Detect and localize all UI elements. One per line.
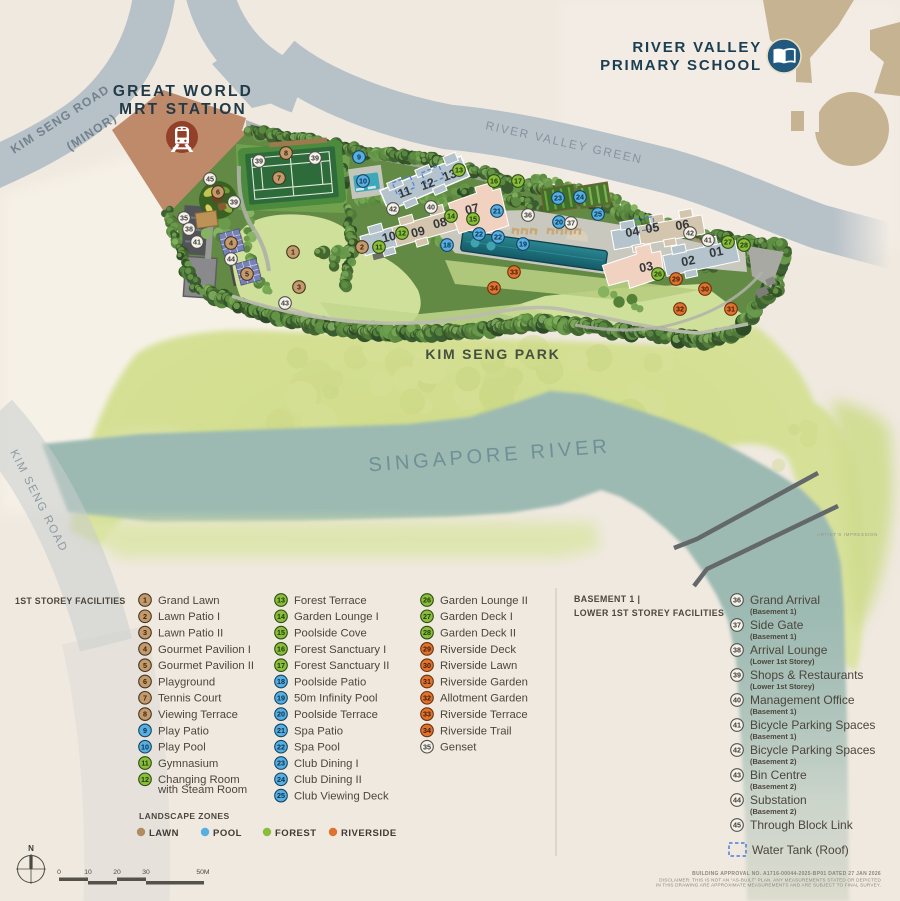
svg-text:Forest Terrace: Forest Terrace (294, 595, 367, 607)
svg-text:36: 36 (733, 596, 741, 605)
svg-text:8: 8 (284, 149, 288, 158)
svg-text:(Lower 1st Storey): (Lower 1st Storey) (750, 682, 815, 691)
svg-text:(Basement 1): (Basement 1) (750, 632, 797, 641)
svg-text:Spa Pool: Spa Pool (294, 742, 340, 754)
svg-text:4: 4 (229, 239, 233, 248)
svg-text:LAWN: LAWN (149, 828, 179, 839)
svg-text:33: 33 (510, 268, 518, 277)
svg-text:(Basement 2): (Basement 2) (750, 782, 797, 791)
svg-text:Playground: Playground (158, 676, 215, 688)
svg-text:14: 14 (277, 612, 285, 621)
svg-text:Arrival Lounge: Arrival Lounge (750, 643, 828, 657)
svg-text:Garden Deck II: Garden Deck II (440, 628, 516, 640)
svg-text:BUILDING APPROVAL NO. A1716-00: BUILDING APPROVAL NO. A1716-00044-2025-B… (692, 871, 881, 877)
svg-text:Riverside Trail: Riverside Trail (440, 725, 512, 737)
svg-text:35: 35 (180, 214, 188, 223)
svg-text:37: 37 (567, 219, 575, 228)
svg-text:19: 19 (277, 693, 285, 702)
svg-text:27: 27 (724, 238, 732, 247)
svg-text:31: 31 (423, 677, 431, 686)
svg-text:5: 5 (245, 270, 249, 279)
svg-text:Tennis Court: Tennis Court (158, 693, 222, 705)
svg-text:24: 24 (277, 775, 285, 784)
svg-text:15: 15 (277, 628, 285, 637)
svg-text:7: 7 (143, 693, 147, 702)
svg-text:02: 02 (680, 253, 696, 269)
svg-text:Forest Sanctuary I: Forest Sanctuary I (294, 644, 386, 656)
svg-text:45: 45 (206, 175, 214, 184)
svg-text:Play Patio: Play Patio (158, 725, 209, 737)
svg-text:9: 9 (357, 153, 361, 162)
svg-text:18: 18 (277, 677, 285, 686)
svg-text:25: 25 (277, 791, 285, 800)
svg-text:2: 2 (143, 612, 147, 621)
svg-text:29: 29 (672, 275, 680, 284)
svg-text:30: 30 (142, 869, 150, 876)
svg-text:23: 23 (554, 194, 562, 203)
svg-text:FOREST: FOREST (275, 828, 317, 839)
svg-text:Poolside Terrace: Poolside Terrace (294, 709, 378, 721)
svg-text:13: 13 (455, 166, 463, 175)
svg-text:7: 7 (277, 174, 281, 183)
svg-text:Lawn Patio II: Lawn Patio II (158, 628, 223, 640)
svg-text:(Basement 1): (Basement 1) (750, 732, 797, 741)
svg-text:43: 43 (733, 771, 741, 780)
svg-text:30: 30 (701, 285, 709, 294)
svg-text:Genset: Genset (440, 742, 477, 754)
svg-text:MRT STATION: MRT STATION (119, 101, 247, 118)
svg-text:32: 32 (423, 693, 431, 702)
svg-text:Viewing Terrace: Viewing Terrace (158, 709, 238, 721)
svg-text:21: 21 (277, 726, 285, 735)
svg-text:Garden Deck I: Garden Deck I (440, 611, 513, 623)
svg-text:Bicycle Parking Spaces: Bicycle Parking Spaces (750, 718, 875, 732)
svg-text:11: 11 (375, 243, 383, 252)
svg-text:16: 16 (277, 645, 285, 654)
svg-text:12: 12 (398, 229, 406, 238)
svg-text:20: 20 (113, 869, 121, 876)
svg-text:Play Pool: Play Pool (158, 742, 206, 754)
svg-text:9: 9 (143, 726, 147, 735)
svg-text:3: 3 (143, 628, 147, 637)
svg-text:1: 1 (143, 596, 147, 605)
svg-text:0: 0 (57, 869, 61, 876)
svg-text:18: 18 (443, 241, 451, 250)
svg-text:42: 42 (686, 229, 694, 238)
svg-text:50M: 50M (196, 869, 210, 876)
svg-text:22: 22 (277, 742, 285, 751)
svg-text:33: 33 (423, 710, 431, 719)
svg-text:Bin Centre: Bin Centre (750, 768, 807, 782)
svg-text:KIM SENG PARK: KIM SENG PARK (425, 346, 560, 362)
svg-text:28: 28 (423, 628, 431, 637)
svg-text:Water Tank (Roof): Water Tank (Roof) (752, 843, 849, 857)
svg-text:(Basement 2): (Basement 2) (750, 807, 797, 816)
svg-text:LANDSCAPE ZONES: LANDSCAPE ZONES (139, 811, 230, 821)
svg-text:30: 30 (423, 661, 431, 670)
svg-text:Lawn Patio I: Lawn Patio I (158, 611, 220, 623)
svg-text:(Basement 2): (Basement 2) (750, 757, 797, 766)
svg-text:1ST STOREY FACILITIES: 1ST STOREY FACILITIES (15, 596, 126, 606)
svg-text:Riverside Garden: Riverside Garden (440, 676, 528, 688)
svg-text:LOWER 1ST STOREY FACILITIES: LOWER 1ST STOREY FACILITIES (574, 608, 724, 618)
svg-text:Garden Lounge I: Garden Lounge I (294, 611, 379, 623)
svg-text:10: 10 (359, 177, 367, 186)
svg-text:17: 17 (514, 177, 522, 186)
svg-text:Gymnasium: Gymnasium (158, 758, 218, 770)
svg-text:32: 32 (676, 305, 684, 314)
svg-text:10: 10 (141, 742, 149, 751)
svg-text:ARTIST’S IMPRESSION: ARTIST’S IMPRESSION (817, 532, 878, 537)
svg-text:Side Gate: Side Gate (750, 618, 804, 632)
svg-text:PRIMARY SCHOOL: PRIMARY SCHOOL (600, 57, 762, 74)
svg-text:Substation: Substation (750, 793, 807, 807)
svg-text:POOL: POOL (213, 828, 242, 839)
svg-text:15: 15 (469, 215, 477, 224)
svg-text:41: 41 (733, 721, 741, 730)
svg-text:Club Dining II: Club Dining II (294, 774, 362, 786)
svg-text:28: 28 (740, 241, 748, 250)
svg-text:Grand Lawn: Grand Lawn (158, 595, 220, 607)
svg-text:5: 5 (143, 661, 147, 670)
svg-text:Gourmet Pavilion II: Gourmet Pavilion II (158, 660, 254, 672)
svg-text:(Basement 1): (Basement 1) (750, 707, 797, 716)
svg-text:IN THIS DRAWING ARE APPROXIMAT: IN THIS DRAWING ARE APPROXIMATE MEASUREM… (656, 883, 881, 888)
svg-text:10: 10 (84, 869, 92, 876)
svg-text:20: 20 (277, 710, 285, 719)
svg-text:(Basement 1): (Basement 1) (750, 607, 797, 616)
svg-text:39: 39 (255, 157, 263, 166)
svg-text:6: 6 (216, 188, 220, 197)
svg-text:2: 2 (360, 243, 364, 252)
svg-text:39: 39 (311, 154, 319, 163)
svg-text:N: N (28, 844, 34, 853)
svg-text:17: 17 (277, 661, 285, 670)
svg-text:13: 13 (277, 596, 285, 605)
svg-text:Riverside Lawn: Riverside Lawn (440, 660, 517, 672)
svg-text:8: 8 (143, 710, 147, 719)
svg-text:(Lower 1st Storey): (Lower 1st Storey) (750, 657, 815, 666)
svg-text:Allotment Garden: Allotment Garden (440, 693, 528, 705)
svg-text:50m Infinity Pool: 50m Infinity Pool (294, 693, 378, 705)
svg-text:BASEMENT 1 |: BASEMENT 1 | (574, 594, 640, 604)
svg-text:29: 29 (423, 645, 431, 654)
svg-text:RIVERSIDE: RIVERSIDE (341, 828, 397, 839)
svg-text:16: 16 (490, 177, 498, 186)
svg-text:39: 39 (230, 198, 238, 207)
svg-text:4: 4 (143, 645, 147, 654)
svg-text:Grand Arrival: Grand Arrival (750, 593, 820, 607)
svg-text:26: 26 (423, 596, 431, 605)
svg-text:37: 37 (733, 621, 741, 630)
svg-text:44: 44 (733, 796, 741, 805)
svg-text:34: 34 (490, 284, 498, 293)
svg-text:Spa Patio: Spa Patio (294, 725, 343, 737)
svg-text:Club Viewing Deck: Club Viewing Deck (294, 791, 389, 803)
svg-text:Riverside Deck: Riverside Deck (440, 644, 516, 656)
svg-text:41: 41 (704, 236, 712, 245)
svg-text:40: 40 (733, 696, 741, 705)
svg-text:1: 1 (291, 248, 295, 257)
svg-text:40: 40 (427, 203, 435, 212)
svg-text:38: 38 (733, 646, 741, 655)
svg-text:19: 19 (519, 240, 527, 249)
svg-text:Poolside Cove: Poolside Cove (294, 628, 367, 640)
svg-text:22: 22 (475, 230, 483, 239)
svg-text:42: 42 (389, 205, 397, 214)
svg-text:35: 35 (423, 742, 431, 751)
svg-text:Riverside Terrace: Riverside Terrace (440, 709, 528, 721)
svg-text:Through Block Link: Through Block Link (750, 818, 854, 832)
svg-text:3: 3 (297, 283, 301, 292)
svg-text:Garden Lounge II: Garden Lounge II (440, 595, 528, 607)
svg-text:39: 39 (733, 671, 741, 680)
svg-text:45: 45 (733, 821, 741, 830)
svg-text:42: 42 (733, 746, 741, 755)
svg-text:31: 31 (727, 305, 735, 314)
svg-text:Club Dining I: Club Dining I (294, 758, 359, 770)
svg-text:05: 05 (644, 220, 660, 236)
svg-text:36: 36 (524, 211, 532, 220)
svg-text:20: 20 (555, 218, 563, 227)
svg-text:6: 6 (143, 677, 147, 686)
svg-text:38: 38 (185, 225, 193, 234)
svg-text:34: 34 (423, 726, 431, 735)
svg-text:Shops & Restaurants: Shops & Restaurants (750, 668, 863, 682)
svg-text:43: 43 (281, 299, 289, 308)
svg-text:23: 23 (277, 759, 285, 768)
svg-text:Gourmet Pavilion I: Gourmet Pavilion I (158, 644, 251, 656)
svg-text:25: 25 (594, 210, 602, 219)
svg-text:26: 26 (654, 270, 662, 279)
svg-text:21: 21 (493, 207, 501, 216)
svg-text:27: 27 (423, 612, 431, 621)
svg-text:Bicycle Parking Spaces: Bicycle Parking Spaces (750, 743, 875, 757)
svg-text:Management Office: Management Office (750, 693, 855, 707)
svg-text:with Steam Room: with Steam Room (157, 784, 247, 796)
svg-text:Forest Sanctuary II: Forest Sanctuary II (294, 660, 389, 672)
svg-text:22: 22 (494, 233, 502, 242)
svg-text:41: 41 (193, 238, 201, 247)
svg-text:12: 12 (141, 775, 149, 784)
svg-text:44: 44 (227, 255, 235, 264)
svg-text:Poolside Patio: Poolside Patio (294, 676, 366, 688)
svg-text:14: 14 (447, 212, 455, 221)
svg-text:24: 24 (576, 193, 584, 202)
svg-text:11: 11 (141, 759, 149, 768)
svg-text:RIVER VALLEY: RIVER VALLEY (632, 39, 762, 56)
svg-text:GREAT WORLD: GREAT WORLD (113, 83, 253, 100)
svg-text:04: 04 (624, 224, 640, 240)
